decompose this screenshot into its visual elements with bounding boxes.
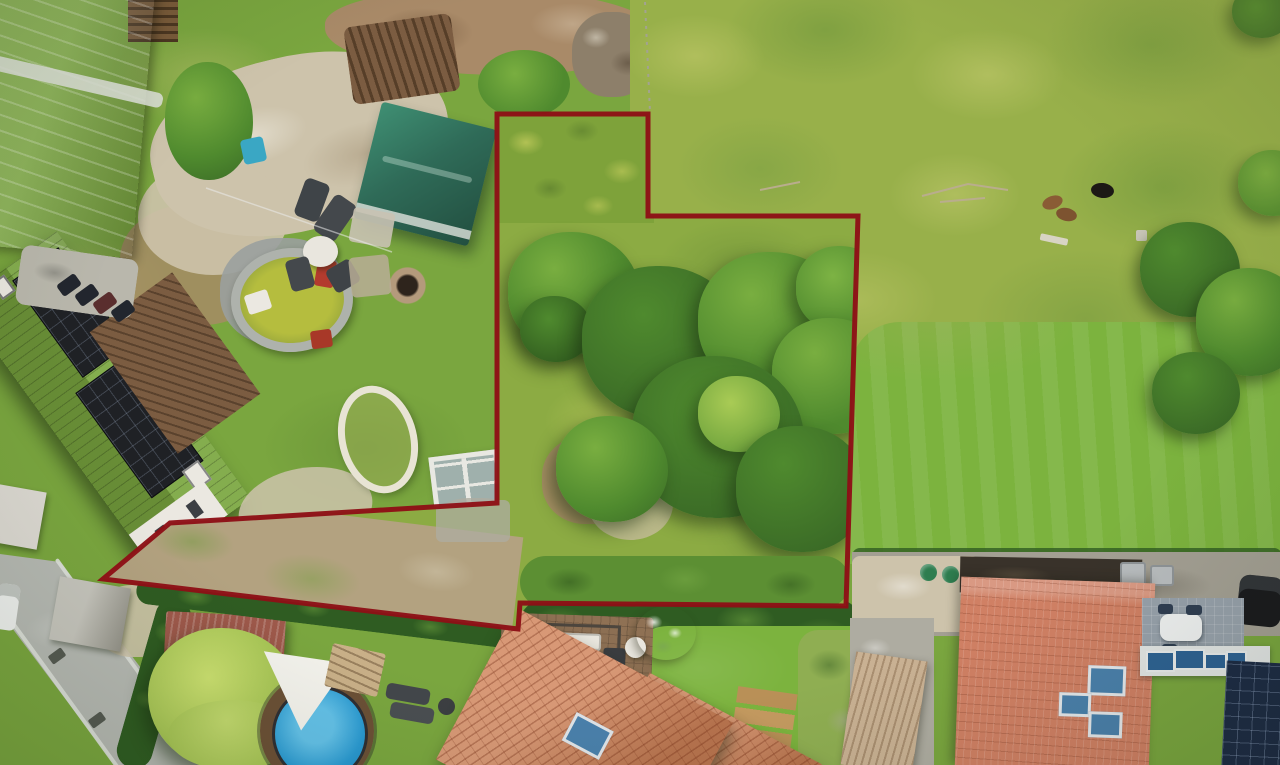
garden-clutter	[348, 254, 392, 298]
bush	[478, 50, 570, 118]
tree	[520, 296, 592, 362]
tree	[556, 416, 668, 522]
skylight	[1087, 665, 1126, 696]
bucket	[1136, 230, 1147, 241]
wood-pile	[343, 13, 461, 105]
solar-thermal-panel	[1146, 651, 1175, 672]
small-gray-roof	[49, 576, 131, 652]
stone-patch	[436, 500, 510, 542]
garden-clutter	[348, 207, 395, 249]
terrace-table	[1160, 614, 1202, 641]
pool-equipment	[310, 329, 333, 350]
solar-thermal-panel	[1174, 649, 1205, 670]
terrace-chair	[1186, 605, 1202, 615]
window	[186, 499, 204, 518]
tree	[736, 426, 868, 552]
fire-pit	[387, 266, 428, 305]
weathered-roof	[840, 652, 927, 765]
aerial-photo	[0, 0, 1280, 765]
tree	[1152, 352, 1240, 434]
green-bin	[920, 564, 937, 581]
green-bin	[942, 566, 959, 583]
flowering-tree	[636, 606, 696, 660]
skylight	[562, 712, 614, 760]
skylight	[1059, 692, 1092, 717]
salmon-tile-roof	[955, 577, 1156, 765]
solar-panel-roof	[1221, 660, 1280, 765]
barn-roof	[0, 0, 156, 258]
bush-row	[520, 556, 850, 608]
skylight	[1088, 711, 1123, 738]
solar-thermal-panel	[1204, 653, 1227, 670]
bush	[165, 62, 253, 180]
sun-lounger	[389, 701, 435, 724]
camping-chair	[240, 136, 268, 165]
pavilion-ridge	[382, 155, 473, 183]
side-table	[438, 698, 455, 715]
terrace-chair	[1158, 604, 1173, 614]
shrub-area	[494, 108, 654, 223]
